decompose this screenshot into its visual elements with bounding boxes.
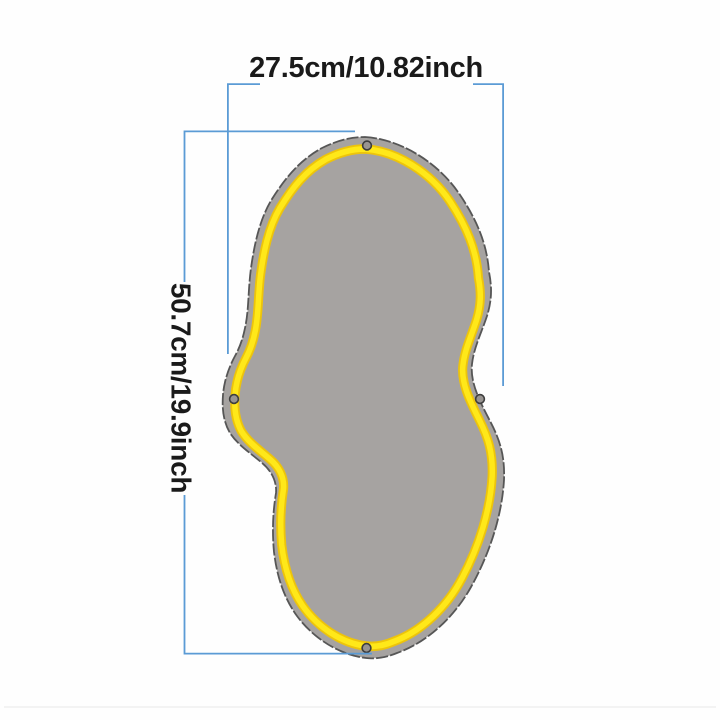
mount-hole-bottom bbox=[362, 644, 371, 653]
mount-hole-right bbox=[476, 395, 485, 404]
dimension-diagram-canvas: 27.5cm/10.82inch 50.7cm/19.9inch bbox=[0, 0, 720, 720]
mount-hole-left bbox=[230, 395, 239, 404]
height-dimension-label: 50.7cm/19.9inch bbox=[166, 283, 197, 493]
width-dimension-label: 27.5cm/10.82inch bbox=[249, 52, 483, 84]
mount-hole-top bbox=[363, 141, 372, 150]
product-dimension-diagram: 27.5cm/10.82inch 50.7cm/19.9inch bbox=[0, 0, 720, 720]
